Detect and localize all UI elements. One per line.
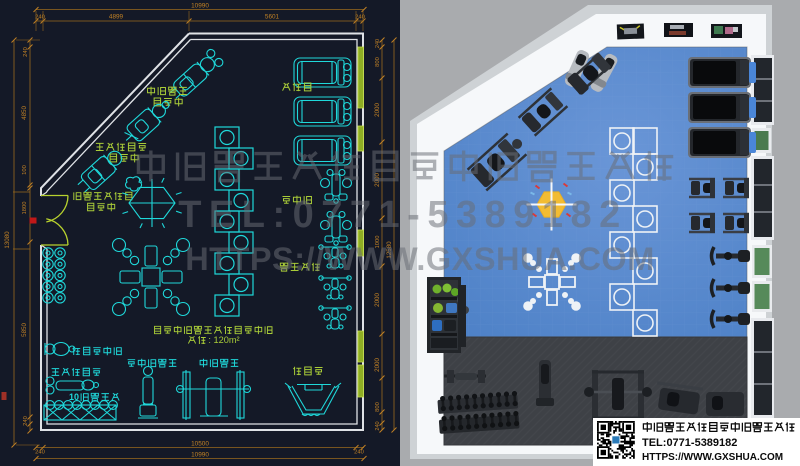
- svg-text:TEL:0771-5389182: TEL:0771-5389182: [178, 194, 628, 236]
- svg-text:HTTPS://WWW.GXSHUA.COM: HTTPS://WWW.GXSHUA.COM: [185, 241, 655, 277]
- svg-text:HTTPS://WWW.GXSHUA.COM: HTTPS://WWW.GXSHUA.COM: [642, 452, 783, 463]
- svg-text:TEL:0771-5389182: TEL:0771-5389182: [642, 437, 737, 449]
